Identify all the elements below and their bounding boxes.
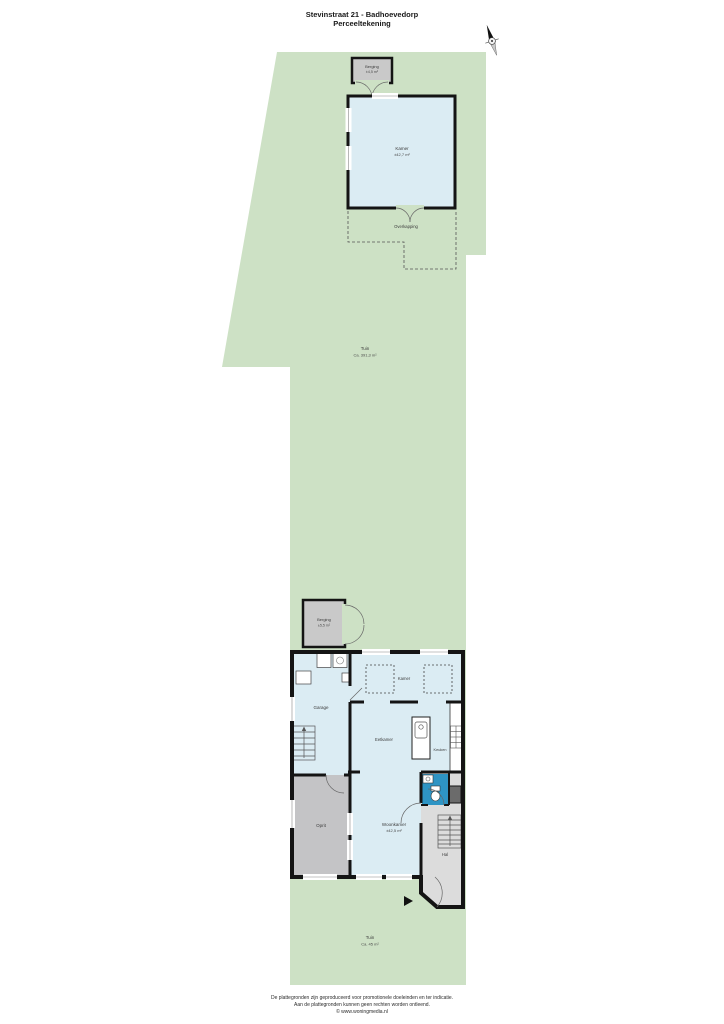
hal-label: Hal [442,852,448,857]
kitchen-island [412,717,430,759]
footer-disclaimer-line1: De plattegronden zijn geproduceerd voor … [271,995,453,1001]
footer-disclaimer-line2: Aan de plattegronden kunnen geen rechten… [294,1002,430,1008]
kitchen-counter [450,703,462,771]
tuin-front-label: Tuin [366,935,375,940]
footer-credit: © www.woningmedia.nl [336,1008,388,1015]
perceeltekening-page: Stevinstraat 21 - Badhoevedorp Perceelte… [0,0,724,1024]
boiler [342,673,349,682]
dryer-icon [333,654,347,668]
tuin-main-label: Tuin [361,346,370,351]
washbasin-icon [423,775,433,783]
berging-mid-area: ±5,5 m² [318,624,331,628]
page-subtitle: Perceeltekening [333,19,391,28]
meter-cabinet [296,671,311,684]
woonkamer-area: ±42,5 m² [386,828,402,833]
kamer-outbuilding [346,93,456,222]
washer-icon [317,654,331,668]
cupboard [449,786,461,803]
keuken-label: Keuken [434,748,447,752]
oprit-label: Oprit [316,823,327,828]
woonkamer-label: Woonkamer [382,822,407,827]
hob-icon [451,726,462,748]
toilet-icon [431,791,440,801]
garage-label: Garage [313,705,329,710]
kamer-outbuilding-area: ±42,7 m² [394,152,410,157]
kamer-outbuilding-label: Kamer [395,146,409,151]
page-title: Stevinstraat 21 - Badhoevedorp [306,10,419,19]
tuin-front-area: Ca. 45 m² [361,942,379,947]
garage-stairs [293,726,315,760]
floorplan-canvas: Stevinstraat 21 - Badhoevedorp Perceelte… [0,0,724,1024]
berging-mid-label: Berging [317,617,331,622]
hal-stairs [438,815,461,848]
tuin-main-area: Ca. 391,3 m² [353,353,377,358]
berging-top-area: ±4,5 m² [366,70,379,74]
kamer-label: Kamer [398,676,411,681]
overkapping-label: Overkapping [394,224,418,229]
eetkamer-room [350,702,463,772]
berging-top-label: Berging [365,64,379,69]
eetkamer-label: Eetkamer [375,737,394,742]
sink-icon [415,722,427,738]
